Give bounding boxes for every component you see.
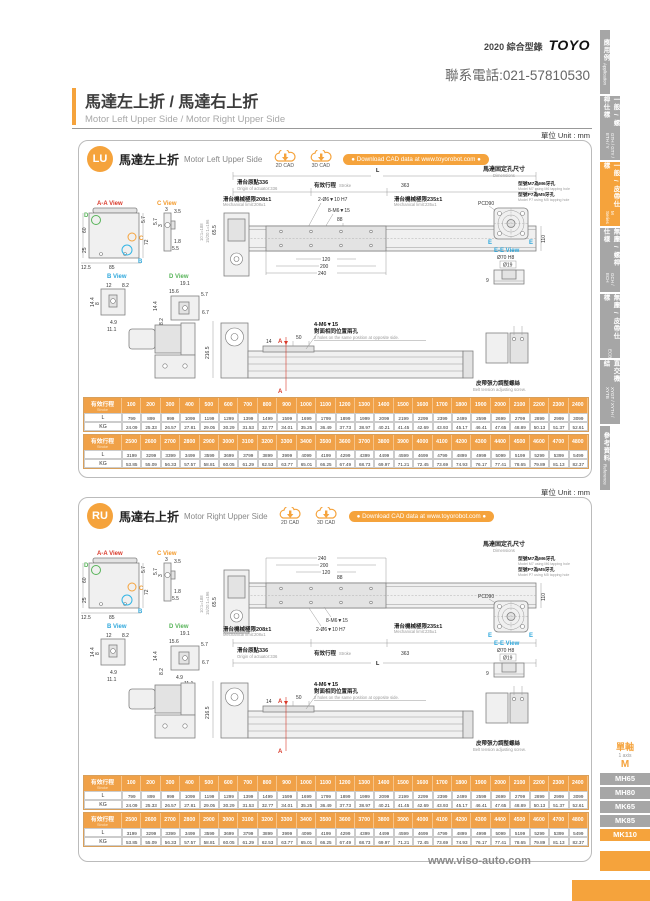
dim-216-5: 216.5 [205,706,211,719]
title-divider [72,128,592,129]
dim-120: 120 [322,570,331,576]
stroke-value: 2700 [161,435,180,450]
length-value: 5499 [569,450,588,459]
stroke-value: 4300 [471,435,490,450]
stroke-value: 600 [219,776,238,791]
stroke-value: 2200 [530,398,549,413]
length-value: 4899 [452,450,471,459]
aa-view-label: A-A View [97,201,123,207]
dim: 8 [95,302,101,305]
dim-50: 50 [296,695,302,701]
weight-value: 76.17 [471,459,490,468]
b-view-label: B View [107,624,127,630]
e-mark-left: E [488,633,492,639]
length-value: 1399 [238,791,257,800]
limit-left-en: Mechanical limit:208±1 [223,202,266,207]
weight-value: 35.25 [297,422,316,431]
motor-mount-section: 馬達固定孔尺寸 Dimensions 型號M7為M6牙孔 Model M7 us… [478,540,570,677]
length-value: 999 [161,413,180,422]
dim: 11.1 [107,327,117,333]
weight-value: 79.89 [530,837,549,846]
dim-88: 88 [337,575,343,581]
weight-value: 58.81 [200,837,219,846]
length-value: 5399 [549,450,568,459]
stroke-table-1: 有效行程Stroke100200300400500600700800900100… [83,775,589,810]
dim-70h8: Ø70 H8 [497,255,514,261]
dim: 5.7 [201,292,208,298]
weight-value: 63.77 [277,837,296,846]
weight-value: 73.69 [433,837,452,846]
length-value: 3199 [122,450,141,459]
dim: 3.5 [174,559,181,565]
weight-value: 27.81 [180,422,199,431]
length-value: 1099 [180,791,199,800]
contact-phone: 聯系電話:021-57810530 [420,64,590,84]
length-value: 799 [122,791,141,800]
stroke-header: 有效行程Stroke [84,776,122,791]
length-value: 1699 [297,791,316,800]
stroke-table-2: 有效行程Stroke250026002700280029003000310032… [83,434,589,469]
weight-value: 58.81 [200,459,219,468]
belt-note-en: Belt tension adjusting screw. [473,387,526,392]
weight-value: 68.73 [355,459,374,468]
row-label-weight: KG [84,800,122,809]
weight-value: 78.65 [510,837,529,846]
weight-value: 27.81 [180,800,199,809]
stroke-value: 700 [238,398,257,413]
dim: 6.7 [202,660,209,666]
dim-65-5: 65.5 [212,225,218,235]
b-view-label: B View [107,274,127,280]
row-label-length: L [84,413,122,422]
stroke-value: 700 [238,776,257,791]
mount-title-zh: 馬達固定孔尺寸 [482,165,525,173]
weight-value: 72.45 [413,459,432,468]
weight-value: 25.33 [141,422,160,431]
dim-19: Ø19 [503,656,513,662]
dim-50: 50 [296,335,302,341]
dim: 12 [106,633,112,639]
dim: 8.2 [122,633,129,639]
weight-value: 55.09 [141,459,160,468]
dim: 15.6 [169,639,179,645]
dim: 5.5 [172,596,179,602]
dim-70h8: Ø70 H8 [497,648,514,654]
weight-value: 67.49 [336,837,355,846]
stroke-value: 4700 [549,813,568,828]
stroke-value: 1200 [336,398,355,413]
holes-note-en: 2 holes on the same position at opposite… [314,335,399,340]
weight-value: 68.73 [355,837,374,846]
stroke-value: 3900 [394,813,413,828]
sidebar-tab-cartesian[interactable]: 直交機結XYGT / XYTH / XYTB [600,360,620,424]
stroke-value: 800 [258,398,277,413]
weight-value: 24.09 [122,800,141,809]
stroke-value: 1200 [336,776,355,791]
length-value: 2299 [413,413,432,422]
weight-value: 53.85 [122,837,141,846]
dim-88: 88 [337,217,343,223]
dim: 12.5 [81,265,91,271]
length-value: 2599 [471,791,490,800]
length-value: 3299 [141,828,160,837]
dim: 1.8 [174,239,181,245]
length-value: 2699 [491,791,510,800]
stroke-value: 400 [180,776,199,791]
weight-value: 71.21 [394,837,413,846]
sidebar-tab-screw-cleanroom[interactable]: 無塵 / 螺桿仕樣GCH / ECH [600,228,620,292]
weight-value: 52.61 [569,800,588,809]
length-value: 4999 [471,828,490,837]
dim-L: L [376,168,380,174]
tab-label-zh: 一般 / 螺桿仕樣 [600,96,620,131]
stroke-value: 4300 [471,813,490,828]
dim: 19.1 [180,281,190,287]
length-value: 2199 [394,791,413,800]
weight-value: 61.29 [238,837,257,846]
length-value: 3799 [238,450,257,459]
stroke-value: 300 [161,776,180,791]
length-value: 1499 [258,413,277,422]
tab-label-en: Application [603,63,608,85]
length-value: 4699 [413,450,432,459]
row-label-weight: KG [84,422,122,431]
length-value: 4699 [413,828,432,837]
weight-value: 69.97 [374,459,393,468]
aa-view: A-A View D C B 5.7 72 60 25 12.5 85 [81,201,150,271]
e-mark-right: E [529,240,533,246]
dim-216-5: 216.5 [205,346,211,359]
length-value: 899 [141,413,160,422]
sidebar-tab-belt-general[interactable]: 一般 / 皮帶仕樣M Series [600,162,620,226]
cloud-download-icon [272,150,298,163]
length-value: 1099 [180,413,199,422]
dim: 12.5 [81,615,91,621]
length-value: 3599 [200,828,219,837]
length-value: 2599 [471,413,490,422]
length-value: 4199 [316,450,335,459]
length-value: 3799 [238,828,257,837]
mount-title-zh: 馬達固定孔尺寸 [482,540,525,548]
sidebar-tab-reference[interactable]: 參考資料Reference [600,426,610,490]
row-label-weight: KG [84,459,122,468]
dim-14: 14 [266,699,272,705]
weight-value: 53.85 [122,459,141,468]
weight-value: 40.21 [374,422,393,431]
dim: 5.5 [172,246,179,252]
stroke-header: 有效行程Stroke [84,398,122,413]
callout-4m6: 4-M6▼15 [314,682,338,688]
dim: 11.1 [107,677,117,683]
stroke-value: 2800 [180,813,199,828]
stroke-value: 3500 [316,435,335,450]
dim: 14.4 [153,651,159,661]
weight-value: 66.25 [316,837,335,846]
stroke-value: 4000 [413,813,432,828]
panel2-drawing: A-A View D C B 5.7 72 60 25 12.5 85 C Vi… [81,513,591,773]
length-value: 3499 [180,450,199,459]
stroke-value: 1300 [355,398,374,413]
stroke-value: 1500 [394,398,413,413]
stroke-value: 1600 [413,398,432,413]
row-label-length: L [84,828,122,837]
length-value: 5299 [530,828,549,837]
weight-value: 62.53 [258,837,277,846]
weight-value: 73.69 [433,459,452,468]
stroke-value: 4100 [433,813,452,828]
stroke-value: 2000 [491,398,510,413]
dim: 6.7 [202,310,209,316]
dim: 85 [109,265,115,271]
dim: 4.9 [110,670,117,676]
weight-value: 67.49 [336,459,355,468]
dim-L: L [376,661,380,667]
length-value: 1599 [277,791,296,800]
tab-label-zh: 一般 / 皮帶仕樣 [600,162,620,209]
stroke-value: 3000 [219,435,238,450]
stroke-value: 2900 [200,435,219,450]
weight-value: 74.93 [452,837,471,846]
ee-view-label: E-E View [494,248,520,254]
stroke-value: 3200 [258,435,277,450]
stroke-value: 100 [122,776,141,791]
weight-value: 30.29 [219,800,238,809]
tab-label-zh: 無塵 / 螺桿仕樣 [600,228,620,271]
length-value: 4299 [336,450,355,459]
weight-value: 56.33 [161,837,180,846]
tab-label-zh: 無塵 / 皮帶仕樣 [600,294,620,347]
length-value: 4399 [355,828,374,837]
stroke-value: 4400 [491,813,510,828]
p7-note-en: Model P7 using M5 tapping hole [518,198,569,202]
weight-value: 41.45 [394,422,413,431]
dim-240: 240 [318,556,327,562]
dim: 8.2 [159,318,165,325]
dim: 4.9 [110,320,117,326]
length-value: 1299 [219,791,238,800]
stroke-value: 2400 [569,776,588,791]
stroke-value: 600 [219,398,238,413]
length-value: 4599 [394,828,413,837]
weight-value: 43.93 [433,800,452,809]
page-header: 2020 綜合型錄TOYO [400,37,590,55]
dim: 5.7 [141,566,147,573]
panel-motor-right-upper: RU 馬達右上折 Motor Right Upper Side 2D CAD 3… [78,497,592,862]
m7-note-zh: 型號M7為M6牙孔 [518,180,556,187]
dim: 8.2 [159,668,165,675]
length-value: 3899 [258,828,277,837]
holes-note-zh: 對面相同位置兩孔 [314,687,359,695]
e-mark-right: E [529,633,533,639]
length-value: 4799 [433,450,452,459]
length-value: 2299 [413,791,432,800]
callout-4m6: 4-M6▼15 [314,322,338,328]
b-view: B View 12 8.2 14.4 8 4.9 11.1 [90,274,129,333]
weight-value: 82.37 [569,459,588,468]
weight-value: 57.57 [180,837,199,846]
stroke-value: 200 [141,398,160,413]
weight-value: 52.61 [569,422,588,431]
dim: 3 [165,557,168,563]
weight-value: 77.41 [491,459,510,468]
tab-label-zh: 直交機結 [600,360,620,385]
dim-14: 14 [266,339,272,345]
weight-value: 72.45 [413,837,432,846]
stroke-value: 1700 [433,398,452,413]
stroke-value: 1000 [297,398,316,413]
d-view-label: D View [169,274,189,280]
stroke-value: 4500 [510,435,529,450]
side-view: 216.5 14 50 4-M6▼15 對面相同位置兩孔 2 holes on … [129,681,528,755]
weight-value: 51.37 [549,800,568,809]
stroke-value: 2000 [491,776,510,791]
weight-value: 69.97 [374,837,393,846]
stroke-value: 4400 [491,435,510,450]
weight-value: 32.77 [258,422,277,431]
length-value: 1199 [200,791,219,800]
cloud-download-icon [308,150,334,163]
weight-value: 65.01 [297,459,316,468]
row-label-length: L [84,450,122,459]
weight-value: 40.21 [374,800,393,809]
weight-value: 43.93 [433,422,452,431]
aa-view: A-A View D C B 5.7 72 60 25 12.5 85 [81,551,150,621]
length-value: 2499 [452,413,471,422]
length-value: 3099 [569,413,588,422]
length-value: 4199 [316,828,335,837]
dim-363: 363 [401,183,410,189]
stroke-value: 1800 [452,776,471,791]
dim: 5.7 [153,568,159,575]
length-value: 1899 [336,791,355,800]
model-item-mh65[interactable]: MH65 [600,773,650,785]
tab-label-en: GTH / GTY / ETH / Y [605,133,615,160]
pcd-label: PCD90 [478,201,494,207]
aa-view-label: A-A View [97,551,123,557]
sidebar-tab-screw-general[interactable]: 一般 / 螺桿仕樣GTH / GTY / ETH / Y [600,96,620,160]
stroke-value: 1900 [471,776,490,791]
length-value: 3599 [200,450,219,459]
dim: 19.1 [180,631,190,637]
stroke-value: 1900 [471,398,490,413]
callout-tap: 8-M6▼15 [326,618,348,624]
dim: 1.8 [174,589,181,595]
weight-value: 45.17 [452,422,471,431]
weight-value: 29.05 [200,422,219,431]
tab-label-en: M Series [605,211,615,226]
dim: 3 [165,207,168,213]
dim-65-5: 65.5 [212,597,218,607]
row-label-weight: KG [84,837,122,846]
stroke-value: 4800 [569,435,588,450]
weight-value: 63.77 [277,459,296,468]
length-value: 2399 [433,413,452,422]
length-value: 4299 [336,828,355,837]
weight-value: 60.05 [219,837,238,846]
length-value: 4899 [452,828,471,837]
model-item-mk110[interactable]: MK110 [600,829,650,841]
dim: 8.2 [122,283,129,289]
weight-value: 74.93 [452,459,471,468]
model-group-zh: 單軸 [600,740,650,753]
length-value: 3899 [258,450,277,459]
weight-value: 42.69 [413,422,432,431]
length-value: 1499 [258,791,277,800]
stroke-value: 3200 [258,813,277,828]
stroke-value: 4100 [433,435,452,450]
weight-value: 45.17 [452,800,471,809]
stroke-value: 2300 [549,398,568,413]
length-value: 5499 [569,828,588,837]
tab-label-zh: 應用例 [600,39,610,62]
panel1-drawing: A-A View D C B 5.7 72 60 25 12.5 85 [81,163,591,398]
weight-value: 47.65 [491,800,510,809]
stroke-header: 有效行程Stroke [84,435,122,450]
length-value: 1299 [219,413,238,422]
model-item-mk65[interactable]: MK65 [600,801,650,813]
callout-dowel: 2-Ø6▼10 H7 [318,197,348,203]
motor-mount-section: 馬達固定孔尺寸 Dimensions 型號M7為M6牙孔 Model M7 us… [478,165,570,284]
weight-value: 37.73 [336,800,355,809]
sidebar-tab-application[interactable]: 應用例Application [600,30,610,94]
stroke-value: 4000 [413,435,432,450]
stroke-value: 2900 [200,813,219,828]
length-value: 899 [141,791,160,800]
model-item-mh80[interactable]: MH80 [600,787,650,799]
stroke-value: 4700 [549,435,568,450]
tab-label-en: Reference [603,464,608,485]
stroke-value: 4200 [452,813,471,828]
length-value: 4799 [433,828,452,837]
model-item-mk85[interactable]: MK85 [600,815,650,827]
d-view-label: D View [169,624,189,630]
weight-value: 34.01 [277,422,296,431]
length-value: 2699 [491,413,510,422]
dim: 3.5 [174,209,181,215]
length-value: 2799 [510,413,529,422]
length-value: 4499 [374,450,393,459]
length-value: 5099 [491,450,510,459]
dim: 5.7 [153,218,159,225]
stroke-value: 3700 [355,435,374,450]
length-value: 3999 [277,450,296,459]
dim-200: 200 [320,563,329,569]
stroke-value: 3900 [394,435,413,450]
catalog-page: 2020 綜合型錄TOYO 聯系電話:021-57810530 應用例Appli… [0,0,650,901]
weight-value: 48.89 [510,800,529,809]
stroke-value: 2500 [122,435,141,450]
dim: 5.7 [201,642,208,648]
side-view: 216.5 14 50 4-M6▼15 對面相同位置兩孔 2 holes on … [129,321,528,395]
tab-label-en: GCH / ECH [605,273,615,292]
stroke-value: 1400 [374,776,393,791]
weight-value: 79.89 [530,459,549,468]
p7-note-zh: 型號P7為M5牙孔 [518,191,555,198]
length-value: 3699 [219,828,238,837]
callout-dowel: 2-Ø6▼10 H7 [316,627,346,633]
stroke-zh: 有效行程 [314,649,337,657]
weight-value: 26.57 [161,800,180,809]
length-value: 1999 [355,791,374,800]
sidebar-tab-belt-cleanroom[interactable]: 無塵 / 皮帶仕樣ECB [600,294,620,358]
dim-240: 240 [318,271,327,277]
length-value: 1599 [277,413,296,422]
length-value: 5199 [510,828,529,837]
p7-note-zh: 型號P7為M5牙孔 [518,566,555,573]
dim-ratio1: 10:1=188 [199,595,204,613]
dim-110: 110 [541,235,547,243]
ee-view-label: E-E View [494,641,520,647]
